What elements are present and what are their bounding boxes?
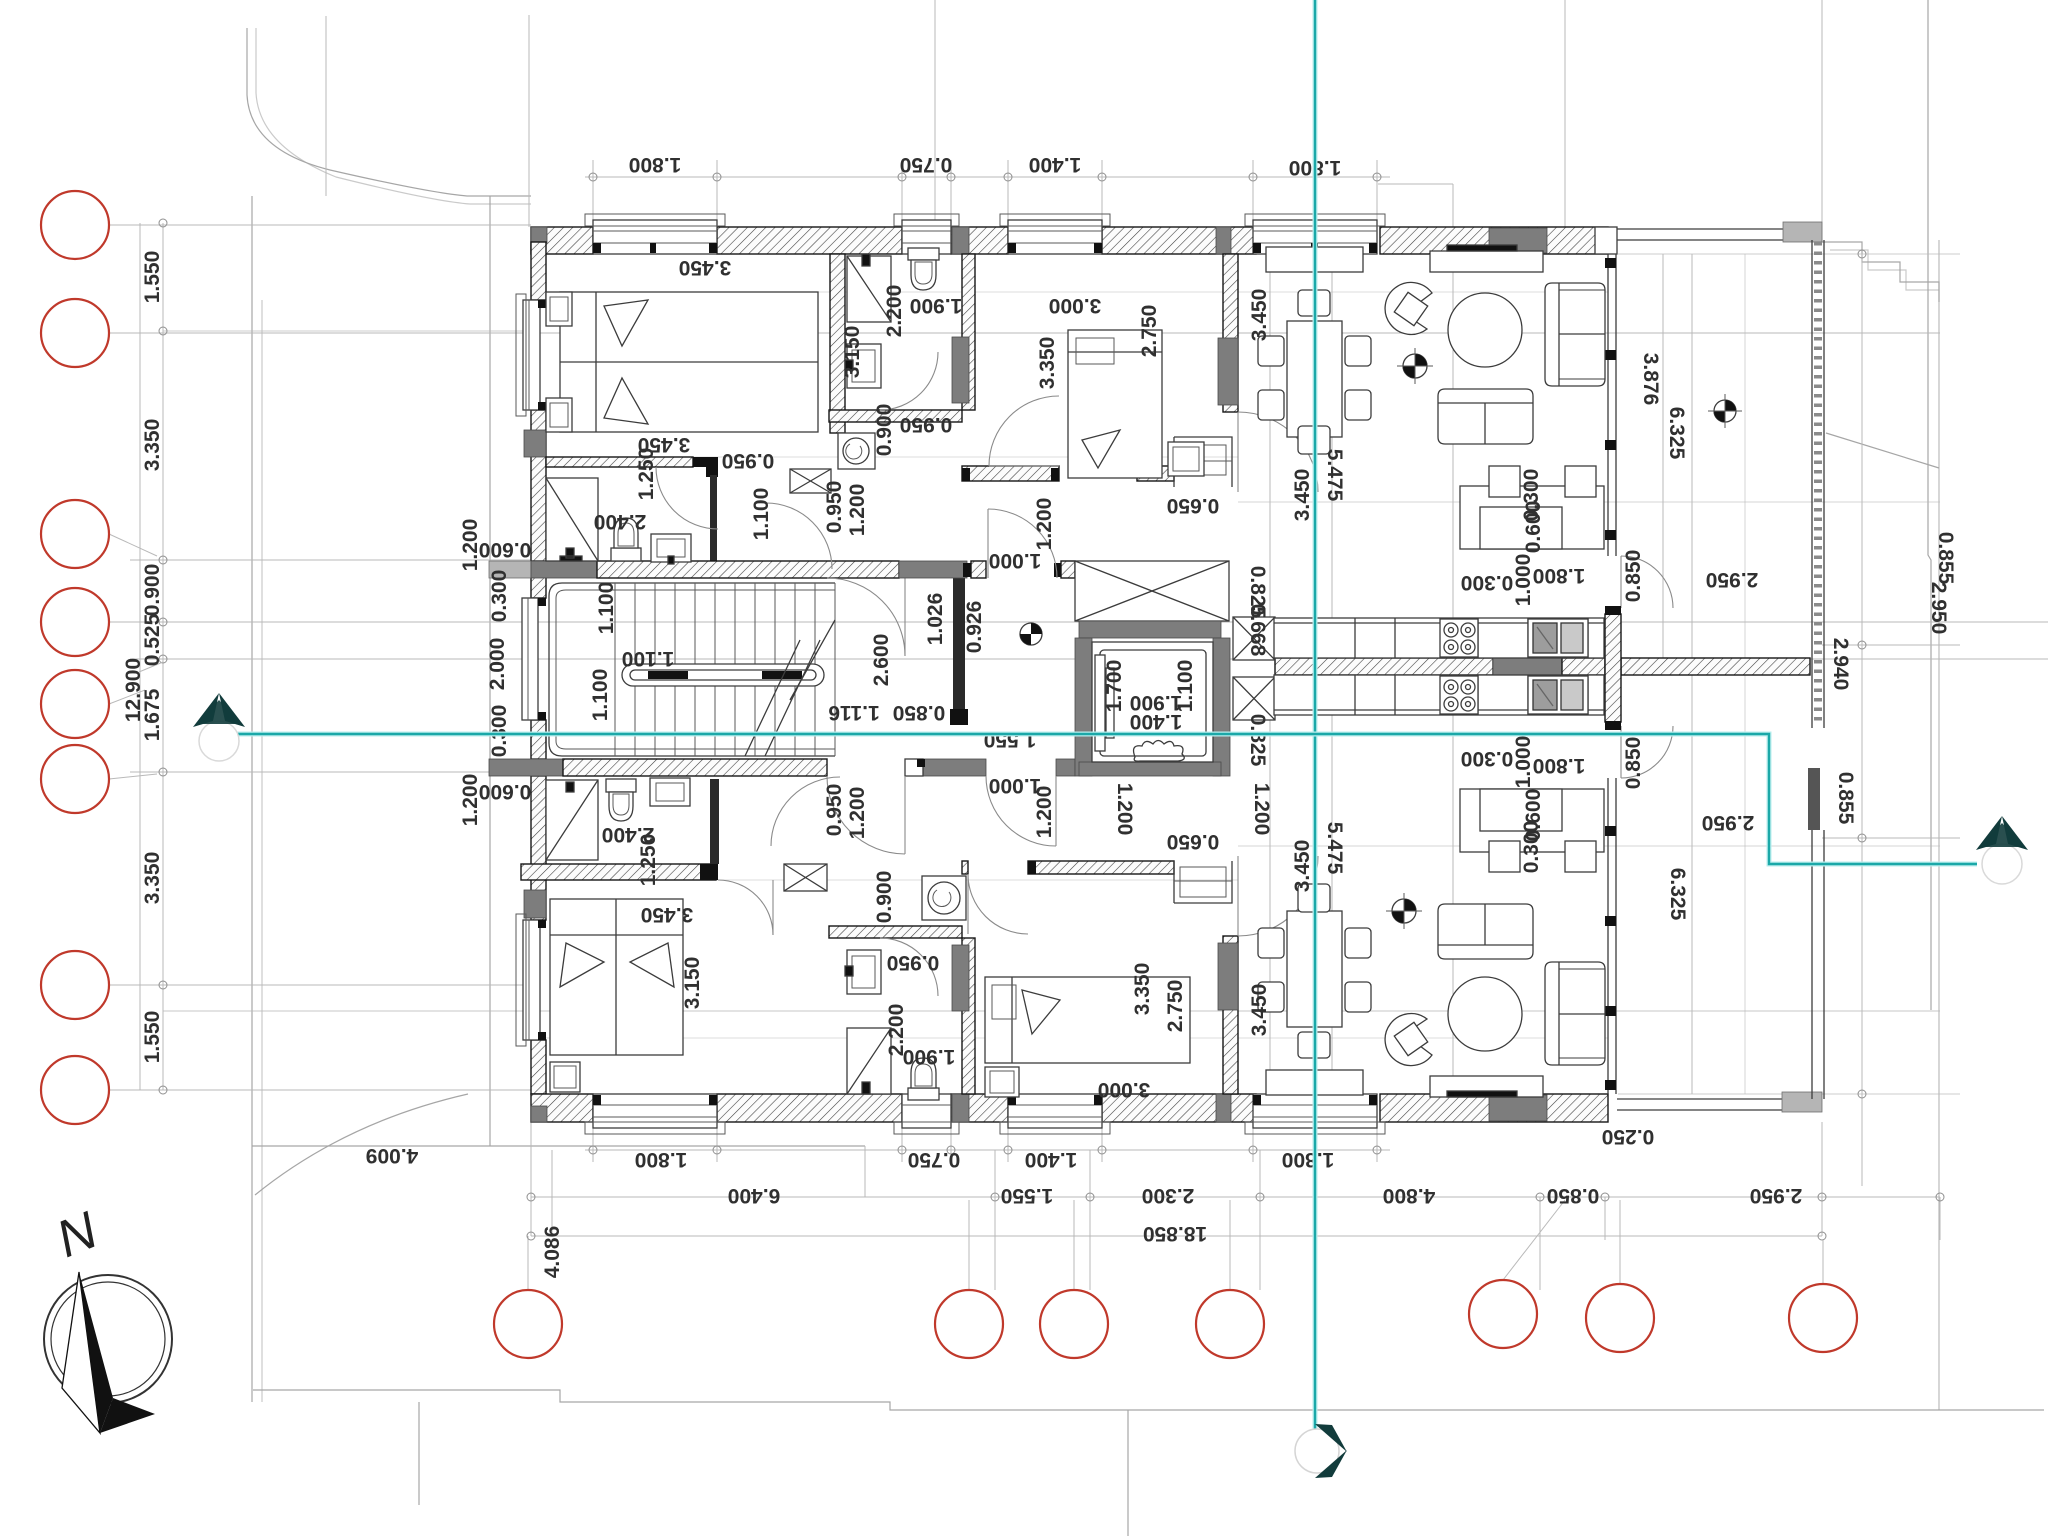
svg-text:2.600: 2.600 <box>870 634 893 687</box>
svg-text:0.926: 0.926 <box>963 601 986 654</box>
svg-text:6.325: 6.325 <box>1665 407 1688 460</box>
svg-text:3.000: 3.000 <box>1049 294 1102 317</box>
svg-text:2.400: 2.400 <box>594 510 647 533</box>
svg-text:1.800: 1.800 <box>1533 754 1586 777</box>
svg-text:1.800: 1.800 <box>629 153 682 176</box>
svg-text:12.900: 12.900 <box>122 658 145 722</box>
svg-text:3.450: 3.450 <box>1291 469 1314 522</box>
svg-text:0.300: 0.300 <box>1461 571 1514 594</box>
svg-text:6.400: 6.400 <box>728 1184 781 1207</box>
svg-text:0.300: 0.300 <box>488 705 511 758</box>
svg-text:0.950: 0.950 <box>887 951 940 974</box>
svg-text:1.250: 1.250 <box>635 448 658 501</box>
svg-text:0.300: 0.300 <box>488 570 511 623</box>
svg-text:0.900: 0.900 <box>873 404 896 457</box>
svg-text:0.300: 0.300 <box>1520 821 1543 874</box>
svg-text:1.200: 1.200 <box>1033 786 1056 839</box>
svg-text:0.750: 0.750 <box>908 1148 961 1171</box>
svg-text:1.026: 1.026 <box>924 593 947 646</box>
svg-text:2.950: 2.950 <box>1750 1184 1803 1207</box>
svg-text:1.200: 1.200 <box>1033 498 1056 551</box>
svg-text:1.900: 1.900 <box>903 1045 956 1068</box>
svg-text:3.350: 3.350 <box>1036 337 1059 390</box>
svg-text:2.000: 2.000 <box>486 638 509 691</box>
svg-text:1.700: 1.700 <box>1103 660 1126 713</box>
svg-text:5.475: 5.475 <box>1323 822 1346 875</box>
svg-text:3.450: 3.450 <box>1248 984 1271 1037</box>
svg-text:1.400: 1.400 <box>1130 710 1183 733</box>
svg-text:0.250: 0.250 <box>1602 1125 1655 1148</box>
svg-text:0.950: 0.950 <box>823 481 846 534</box>
svg-text:5.475: 5.475 <box>1323 449 1346 502</box>
svg-text:3.150: 3.150 <box>681 957 704 1010</box>
svg-text:3.350: 3.350 <box>141 852 164 905</box>
svg-text:1.400: 1.400 <box>1025 1148 1078 1171</box>
svg-text:3.350: 3.350 <box>141 419 164 472</box>
svg-text:4.086: 4.086 <box>541 1226 564 1279</box>
svg-text:0.950: 0.950 <box>900 413 953 436</box>
svg-text:3.150: 3.150 <box>841 326 864 379</box>
svg-text:1.100: 1.100 <box>750 488 773 541</box>
svg-text:1.100: 1.100 <box>589 669 612 722</box>
svg-text:3.450: 3.450 <box>1248 289 1271 342</box>
svg-text:0.650: 0.650 <box>1167 830 1220 853</box>
svg-text:3.450: 3.450 <box>679 256 732 279</box>
svg-text:0.950: 0.950 <box>823 784 846 837</box>
svg-text:1.400: 1.400 <box>1029 153 1082 176</box>
svg-text:18.850: 18.850 <box>1143 1222 1207 1245</box>
svg-text:1.000: 1.000 <box>989 549 1042 572</box>
svg-text:0.855: 0.855 <box>1934 532 1957 585</box>
svg-text:2.950: 2.950 <box>1927 582 1950 635</box>
svg-text:2.200: 2.200 <box>883 285 906 338</box>
svg-text:0.850: 0.850 <box>893 701 946 724</box>
svg-text:1.800: 1.800 <box>1533 564 1586 587</box>
svg-text:2.950: 2.950 <box>1706 568 1759 591</box>
svg-text:1.000: 1.000 <box>1512 554 1535 607</box>
svg-text:0.300: 0.300 <box>1520 469 1543 522</box>
svg-text:3.450: 3.450 <box>1291 840 1314 893</box>
svg-text:1.200: 1.200 <box>459 774 482 827</box>
svg-text:1.550: 1.550 <box>141 251 164 304</box>
svg-text:1.250: 1.250 <box>637 834 660 887</box>
svg-text:3.000: 3.000 <box>1098 1078 1151 1101</box>
svg-text:1.200: 1.200 <box>1113 783 1136 836</box>
svg-text:3.350: 3.350 <box>1131 963 1154 1016</box>
svg-text:1.800: 1.800 <box>635 1148 688 1171</box>
svg-text:6.325: 6.325 <box>1666 868 1689 921</box>
svg-text:0.850: 0.850 <box>1547 1184 1600 1207</box>
svg-text:0.825: 0.825 <box>1246 714 1269 767</box>
svg-text:1.100: 1.100 <box>595 582 618 635</box>
svg-text:0.855: 0.855 <box>1834 772 1857 825</box>
svg-text:0.600: 0.600 <box>479 538 532 561</box>
svg-text:2.750: 2.750 <box>1164 980 1187 1033</box>
svg-text:0.850: 0.850 <box>1622 550 1645 603</box>
svg-text:3.450: 3.450 <box>641 903 694 926</box>
svg-text:1.550: 1.550 <box>1001 1184 1054 1207</box>
svg-text:1.800: 1.800 <box>1282 1148 1335 1171</box>
svg-text:1.200: 1.200 <box>1250 783 1273 836</box>
svg-text:0.668: 0.668 <box>1246 604 1269 657</box>
svg-text:2.300: 2.300 <box>1142 1184 1195 1207</box>
svg-text:0.900: 0.900 <box>873 871 896 924</box>
svg-text:1.900: 1.900 <box>910 294 963 317</box>
svg-text:0.300: 0.300 <box>1461 747 1514 770</box>
svg-text:1.550: 1.550 <box>141 1011 164 1064</box>
svg-text:2.750: 2.750 <box>1138 305 1161 358</box>
svg-text:1.100: 1.100 <box>1174 660 1197 713</box>
svg-text:1.100: 1.100 <box>622 647 675 670</box>
svg-text:1.000: 1.000 <box>1512 736 1535 789</box>
svg-text:4.800: 4.800 <box>1383 1184 1436 1207</box>
svg-text:4.009: 4.009 <box>366 1144 419 1167</box>
svg-text:0.750: 0.750 <box>900 153 953 176</box>
svg-text:3.876: 3.876 <box>1639 353 1662 406</box>
svg-text:1.200: 1.200 <box>459 519 482 572</box>
svg-text:0.650: 0.650 <box>1167 494 1220 517</box>
svg-text:1.200: 1.200 <box>846 787 869 840</box>
svg-text:0.600: 0.600 <box>479 780 532 803</box>
svg-text:0.900: 0.900 <box>141 564 164 617</box>
svg-text:0.950: 0.950 <box>722 449 775 472</box>
svg-text:2.950: 2.950 <box>1702 811 1755 834</box>
svg-text:2.940: 2.940 <box>1829 638 1852 691</box>
svg-text:1.116: 1.116 <box>828 701 879 724</box>
svg-text:1.550: 1.550 <box>984 728 1037 751</box>
svg-text:0.850: 0.850 <box>1622 737 1645 790</box>
svg-text:1.200: 1.200 <box>846 484 869 537</box>
